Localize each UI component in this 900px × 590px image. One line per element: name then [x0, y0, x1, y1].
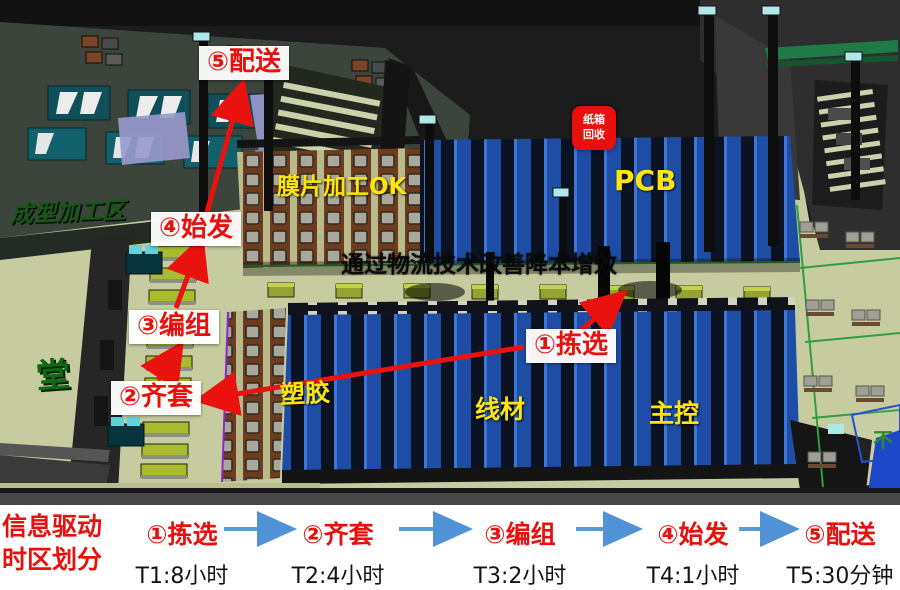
factory-3d-scene: 通过物流技术改善降本增效 成型加工区 堂 不 膜片加工OK PCB 塑胶 线材 …	[0, 0, 900, 505]
flow-heading-line2: 时区划分	[2, 544, 102, 577]
corner-floor-glyph: 不	[873, 424, 893, 453]
carton-recycle-badge: 纸箱 回收	[572, 106, 616, 150]
slide: { "scene": { "banner": "通过物流技术改善降本增效", "…	[0, 0, 900, 587]
lower-brown-racks	[222, 308, 286, 482]
annotation-pick: ①拣选	[526, 329, 616, 363]
floor-logo-glyph: 堂	[34, 347, 71, 398]
flow-step-kit: ②齐套 T2:4小时	[281, 515, 395, 590]
flow-step-label: ⑤配送	[778, 515, 900, 551]
flow-step-group: ③编组 T3:2小时	[463, 515, 577, 590]
area-label-pcb: PCB	[614, 164, 676, 197]
area-label-plastic: 塑胶	[279, 373, 331, 412]
flow-step-label: ①拣选	[123, 515, 241, 551]
flow-step-time: T1:8小时	[123, 558, 241, 590]
flow-step-time: T2:4小时	[281, 558, 395, 590]
annotation-delivery: ⑤配送	[199, 46, 289, 80]
flow-heading: 信息驱动 时区划分	[2, 511, 102, 576]
flow-step-label: ③编组	[463, 515, 577, 551]
flow-timeline: 信息驱动 时区划分 ①拣选 T1:8小时 ②齐套 T2:4小时 ③编组 T3:2…	[0, 505, 900, 587]
flow-step-time: T4:1小时	[636, 558, 750, 590]
flow-step-delivery: ⑤配送 T5:30分钟	[778, 515, 900, 590]
flow-step-label: ②齐套	[281, 515, 395, 551]
flow-step-time: T5:30分钟	[778, 558, 900, 590]
area-label-main-control: 主控	[649, 394, 699, 430]
flow-step-depart: ④始发 T4:1小时	[636, 515, 750, 590]
flow-heading-line1: 信息驱动	[2, 511, 102, 544]
floor-label-molding-area: 成型加工区	[9, 191, 125, 229]
annotation-kit: ②齐套	[111, 381, 201, 415]
annotation-group: ③编组	[129, 310, 219, 344]
flow-step-time: T3:2小时	[463, 558, 577, 590]
area-label-film: 膜片加工OK	[277, 167, 406, 201]
carton-recycle-line1: 纸箱	[583, 113, 605, 128]
scene-banner: 通过物流技术改善降本增效	[341, 245, 617, 279]
carton-recycle-line2: 回收	[583, 128, 605, 143]
area-label-wire: 线材	[475, 390, 525, 426]
flow-step-pick: ①拣选 T1:8小时	[123, 515, 241, 590]
annotation-depart: ④始发	[151, 212, 241, 246]
flow-step-label: ④始发	[636, 515, 750, 551]
